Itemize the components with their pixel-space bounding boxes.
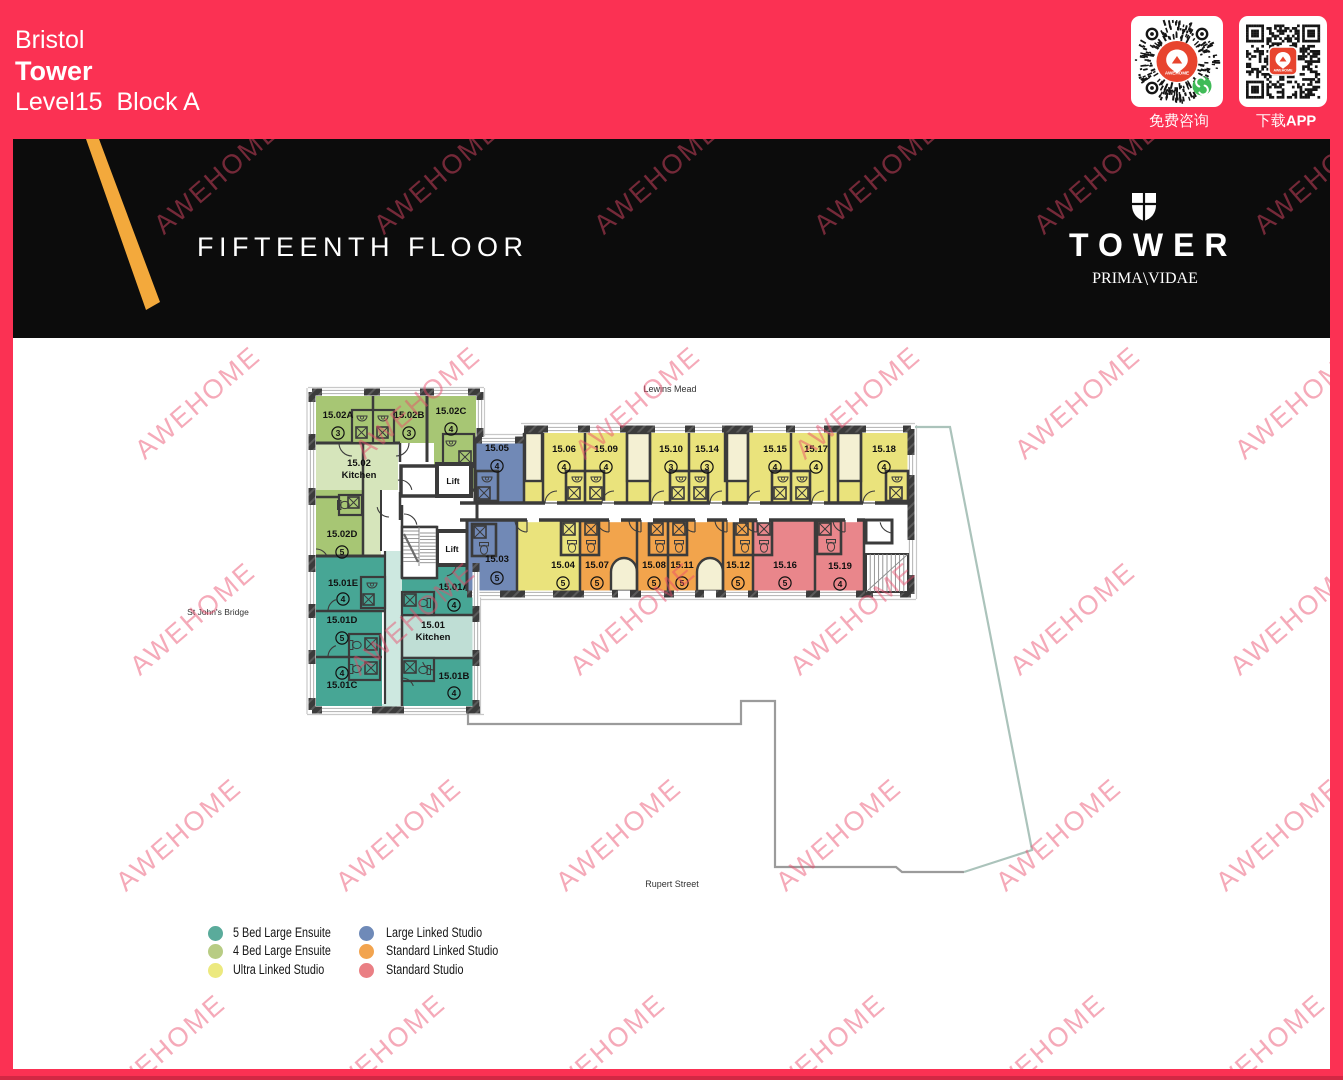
- svg-text:APP: APP: [1286, 114, 1316, 130]
